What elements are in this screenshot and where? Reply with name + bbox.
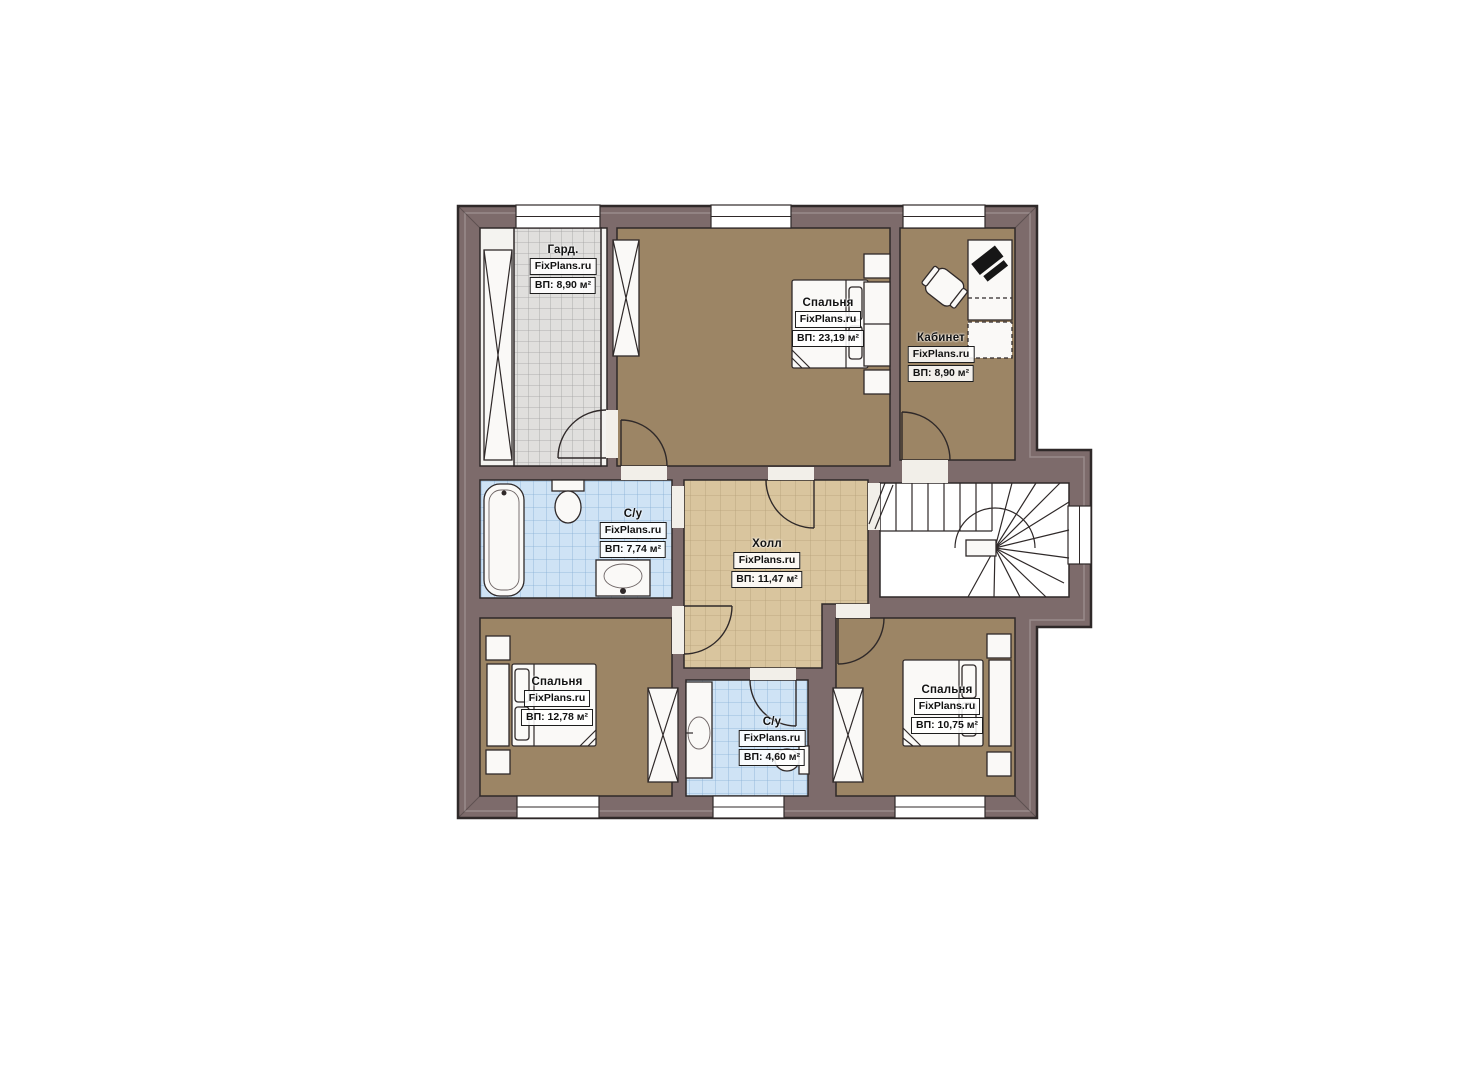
closet-bedroom-right xyxy=(833,688,863,782)
room-name: Спальня xyxy=(792,297,864,309)
sink-main xyxy=(596,560,650,596)
nightstand xyxy=(987,752,1011,776)
brand-badge: FixPlans.ru xyxy=(600,522,667,539)
opening-bedroom-right xyxy=(836,604,870,618)
opening-wardrobe xyxy=(606,410,618,458)
toilet-main xyxy=(552,480,584,523)
stair-newel xyxy=(966,540,996,556)
room-name: Холл xyxy=(731,538,802,550)
opening-hall-top xyxy=(768,467,814,480)
label-hall: Холл FixPlans.ru ВП: 11,47 м² xyxy=(731,538,802,588)
window-stairs xyxy=(1068,506,1091,564)
opening-bathroom-main xyxy=(672,486,684,528)
area-badge: ВП: 7,74 м² xyxy=(600,541,666,558)
area-badge: ВП: 8,90 м² xyxy=(530,277,596,294)
room-name: С/у xyxy=(739,716,806,728)
brand-badge: FixPlans.ru xyxy=(530,258,597,275)
closet-bedroom-top xyxy=(613,240,639,356)
nightstand xyxy=(486,636,510,660)
brand-badge: FixPlans.ru xyxy=(739,730,806,747)
opening-bedroom-left xyxy=(672,606,684,654)
room-name: Спальня xyxy=(521,676,593,688)
label-bedroom-left: Спальня FixPlans.ru ВП: 12,78 м² xyxy=(521,676,593,726)
nightstand xyxy=(987,634,1011,658)
window-bottom-2 xyxy=(713,796,784,818)
window-top-3 xyxy=(903,205,985,228)
window-top-2 xyxy=(711,205,791,228)
office-desk xyxy=(968,240,1012,358)
room-name: Спальня xyxy=(911,684,983,696)
label-bedroom-right: Спальня FixPlans.ru ВП: 10,75 м² xyxy=(911,684,983,734)
label-bathroom-small: С/у FixPlans.ru ВП: 4,60 м² xyxy=(739,716,806,766)
closet-bedroom-left xyxy=(648,688,678,782)
nightstand xyxy=(864,254,890,278)
area-badge: ВП: 23,19 м² xyxy=(792,330,864,347)
bathtub xyxy=(484,484,524,596)
sink-small xyxy=(686,682,712,778)
opening-office xyxy=(902,460,948,483)
headboard xyxy=(487,664,509,746)
area-badge: ВП: 8,90 м² xyxy=(908,365,974,382)
brand-badge: FixPlans.ru xyxy=(908,346,975,363)
opening-bathroom-small xyxy=(750,668,796,680)
floor-plan-canvas: Гард. FixPlans.ru ВП: 8,90 м² Спальня Fi… xyxy=(0,0,1473,1080)
window-top-1 xyxy=(516,205,600,228)
window-bottom-1 xyxy=(517,796,599,818)
opening-bedroom-top xyxy=(621,466,667,480)
headboard xyxy=(989,660,1011,746)
nightstand xyxy=(864,370,890,394)
label-office: Кабинет FixPlans.ru ВП: 8,90 м² xyxy=(908,332,975,382)
room-name: Кабинет xyxy=(908,332,975,344)
brand-badge: FixPlans.ru xyxy=(914,698,981,715)
brand-badge: FixPlans.ru xyxy=(734,552,801,569)
brand-badge: FixPlans.ru xyxy=(524,690,591,707)
room-name: Гард. xyxy=(530,244,597,256)
area-badge: ВП: 10,75 м² xyxy=(911,717,983,734)
label-wardrobe: Гард. FixPlans.ru ВП: 8,90 м² xyxy=(530,244,597,294)
label-bedroom-top: Спальня FixPlans.ru ВП: 23,19 м² xyxy=(792,297,864,347)
label-bathroom-main: С/у FixPlans.ru ВП: 7,74 м² xyxy=(600,508,667,558)
area-badge: ВП: 4,60 м² xyxy=(739,749,805,766)
nightstand xyxy=(486,750,510,774)
area-badge: ВП: 12,78 м² xyxy=(521,709,593,726)
brand-badge: FixPlans.ru xyxy=(795,311,862,328)
room-name: С/у xyxy=(600,508,667,520)
closet-wardrobe-left xyxy=(484,250,512,460)
window-bottom-3 xyxy=(895,796,985,818)
area-badge: ВП: 11,47 м² xyxy=(731,571,802,588)
